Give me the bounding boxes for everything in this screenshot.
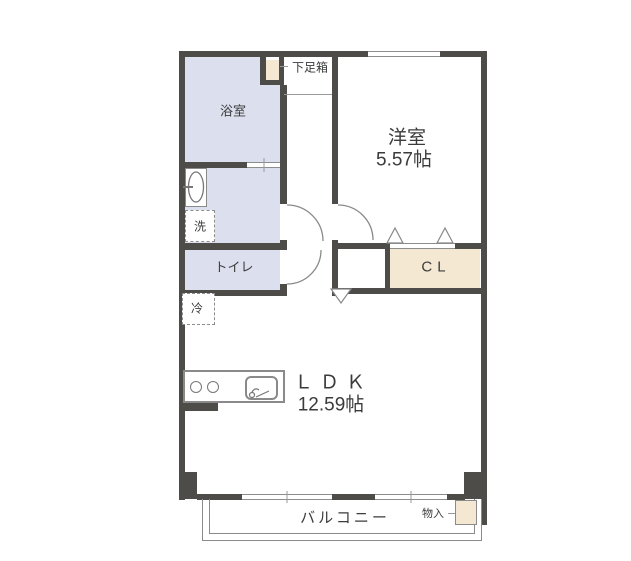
kitchen-sink-icon: [245, 376, 278, 400]
entrance-step-line: [284, 94, 332, 95]
wall-corner-block: [464, 472, 487, 499]
wall-segment: [385, 249, 390, 288]
wall-segment: [179, 51, 368, 57]
wall-segment: [280, 85, 287, 204]
wall-segment: [332, 56, 338, 204]
bathroom-door-opening: [247, 162, 280, 168]
bedroom-door-swing-icon: [338, 205, 373, 240]
shoe-cabinet-label: 下足箱: [292, 59, 328, 76]
wall-segment: [481, 51, 487, 500]
fixtures-overlay: [0, 0, 631, 561]
fridge-space-label: 冷: [191, 300, 203, 317]
washer-space-label: 洗: [194, 218, 206, 235]
wall-segment: [179, 51, 185, 500]
shoe-cabinet-leader-line: [280, 66, 288, 67]
wall-segment: [179, 403, 218, 411]
wall-segment: [185, 243, 280, 250]
toilet-label: トイレ: [214, 257, 253, 276]
closet-label: CL: [421, 259, 450, 276]
closet-door-marker-icon: [387, 228, 403, 243]
floor-plan: 浴室 下足箱 洋室 5.57帖 洗 トイレ CL 冷 ＬＤＫ 12.59帖 バル…: [0, 0, 631, 561]
bathroom-label: 浴室: [220, 101, 246, 120]
wall-corner-block: [179, 472, 197, 499]
washroom-door-swing-icon: [287, 205, 323, 241]
ldk-size-label: 12.59帖: [298, 390, 365, 417]
closet-door-marker-icon: [437, 228, 453, 243]
bathroom-area: [185, 85, 280, 162]
storage-box: [455, 500, 477, 525]
wall-segment: [332, 288, 481, 294]
stove-burner-icon: [190, 381, 202, 393]
bedroom-size-label: 5.57帖: [376, 145, 432, 172]
washbasin-icon: [185, 168, 207, 207]
balcony-label: バルコニー: [300, 507, 390, 528]
wall-segment: [455, 243, 481, 249]
storage-label: 物入: [422, 505, 444, 521]
wall-segment: [332, 243, 390, 249]
wall-segment: [440, 51, 487, 57]
bedroom-window: [368, 51, 440, 57]
stove-burner-icon: [207, 381, 219, 393]
wall-segment: [280, 240, 287, 250]
shoe-cabinet-area: [266, 60, 279, 80]
bathroom-area: [185, 57, 260, 85]
toilet-door-swing-icon: [287, 250, 321, 284]
closet-door-opening: [390, 243, 455, 249]
